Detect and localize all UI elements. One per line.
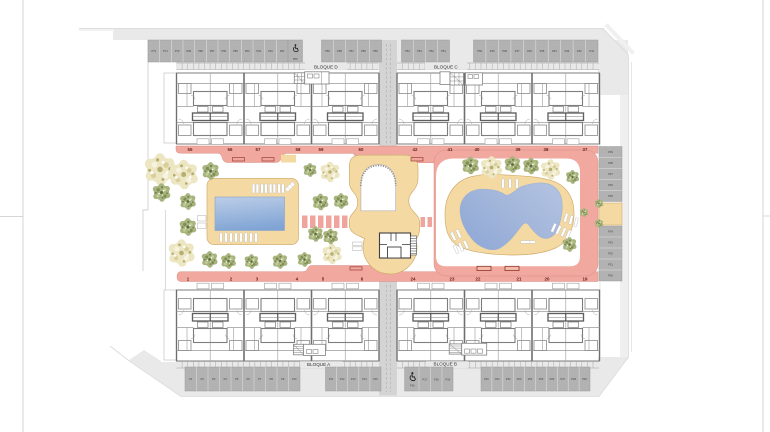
svg-text:P62: P62 — [268, 49, 273, 53]
svg-text:P21: P21 — [495, 377, 500, 381]
svg-text:55: 55 — [188, 147, 193, 152]
svg-text:P19: P19 — [445, 378, 450, 382]
svg-text:P16: P16 — [410, 384, 415, 388]
svg-text:P20: P20 — [484, 377, 489, 381]
svg-text:P49: P49 — [490, 49, 495, 53]
svg-text:P34: P34 — [608, 230, 613, 234]
svg-text:58: 58 — [296, 147, 301, 152]
svg-text:24: 24 — [411, 277, 416, 282]
svg-text:P50: P50 — [477, 49, 482, 53]
svg-text:P9: P9 — [281, 377, 285, 381]
svg-text:P39: P39 — [608, 150, 613, 154]
svg-text:38: 38 — [544, 147, 549, 152]
svg-text:BLOQUE A: BLOQUE A — [307, 362, 331, 367]
svg-text:P14: P14 — [362, 377, 367, 381]
svg-text:59: 59 — [319, 147, 324, 152]
svg-text:P65: P65 — [233, 49, 238, 53]
svg-text:P27: P27 — [560, 377, 565, 381]
svg-text:P24: P24 — [528, 377, 533, 381]
svg-text:P12: P12 — [340, 377, 345, 381]
svg-text:42: 42 — [413, 147, 418, 152]
svg-text:P23: P23 — [517, 377, 522, 381]
svg-text:P36: P36 — [608, 183, 613, 187]
svg-text:P55: P55 — [373, 49, 378, 53]
svg-text:P30: P30 — [608, 274, 613, 278]
svg-text:P2: P2 — [201, 377, 205, 381]
svg-text:P22: P22 — [506, 377, 511, 381]
svg-text:P26: P26 — [550, 377, 555, 381]
svg-text:40: 40 — [475, 147, 480, 152]
svg-text:P28: P28 — [571, 377, 576, 381]
svg-text:P4: P4 — [224, 377, 228, 381]
svg-text:20: 20 — [545, 277, 550, 282]
svg-text:P37: P37 — [608, 172, 613, 176]
svg-text:P53: P53 — [417, 49, 422, 53]
svg-text:P5: P5 — [235, 377, 239, 381]
svg-text:P66: P66 — [221, 49, 226, 53]
svg-text:56: 56 — [228, 147, 233, 152]
svg-text:37: 37 — [583, 147, 588, 152]
svg-text:P1: P1 — [189, 377, 193, 381]
svg-text:P61: P61 — [280, 49, 285, 53]
svg-text:P48: P48 — [502, 49, 507, 53]
svg-text:P8: P8 — [270, 377, 274, 381]
svg-text:P71: P71 — [163, 49, 168, 53]
svg-text:P60: P60 — [293, 57, 298, 61]
svg-text:60: 60 — [359, 147, 364, 152]
svg-text:23: 23 — [450, 277, 455, 282]
svg-text:P11: P11 — [329, 377, 334, 381]
svg-text:P44: P44 — [552, 49, 557, 53]
svg-text:22: 22 — [476, 277, 481, 282]
svg-text:P42: P42 — [577, 49, 582, 53]
svg-text:P38: P38 — [608, 161, 613, 165]
svg-text:P32: P32 — [608, 252, 613, 256]
svg-text:57: 57 — [256, 147, 261, 152]
svg-text:BLOQUE D: BLOQUE D — [314, 65, 338, 70]
svg-text:P35: P35 — [608, 194, 613, 198]
svg-text:P70: P70 — [175, 49, 180, 53]
svg-text:P25: P25 — [539, 377, 544, 381]
svg-text:P43: P43 — [565, 49, 570, 53]
svg-text:P59: P59 — [325, 49, 330, 53]
svg-text:P52: P52 — [429, 49, 434, 53]
svg-text:P47: P47 — [515, 49, 520, 53]
svg-text:P51: P51 — [441, 49, 446, 53]
svg-text:P46: P46 — [527, 49, 532, 53]
svg-text:P15: P15 — [373, 377, 378, 381]
svg-text:21: 21 — [517, 277, 522, 282]
svg-text:P72: P72 — [151, 49, 156, 53]
svg-text:BLOQUE C: BLOQUE C — [434, 65, 458, 70]
svg-text:P69: P69 — [186, 49, 191, 53]
svg-text:P41: P41 — [589, 49, 594, 53]
svg-text:P67: P67 — [210, 49, 215, 53]
svg-text:P57: P57 — [349, 49, 354, 53]
svg-text:P54: P54 — [405, 49, 410, 53]
svg-text:P56: P56 — [361, 49, 366, 53]
svg-text:P64: P64 — [245, 49, 250, 53]
svg-text:P33: P33 — [608, 241, 613, 245]
svg-text:P13: P13 — [351, 377, 356, 381]
svg-text:P45: P45 — [540, 49, 545, 53]
svg-text:19: 19 — [583, 277, 588, 282]
svg-text:P7: P7 — [258, 377, 262, 381]
svg-text:P6: P6 — [247, 377, 251, 381]
svg-text:P10: P10 — [292, 377, 297, 381]
svg-text:P18: P18 — [434, 378, 439, 382]
svg-text:P3: P3 — [212, 377, 216, 381]
svg-text:P58: P58 — [337, 49, 342, 53]
svg-text:P63: P63 — [256, 49, 261, 53]
svg-text:BLOQUE B: BLOQUE B — [434, 362, 458, 367]
svg-text:P17: P17 — [422, 378, 427, 382]
svg-text:P29: P29 — [582, 377, 587, 381]
svg-text:P31: P31 — [608, 263, 613, 267]
svg-text:P68: P68 — [198, 49, 203, 53]
svg-text:39: 39 — [516, 147, 521, 152]
svg-text:41: 41 — [448, 147, 453, 152]
